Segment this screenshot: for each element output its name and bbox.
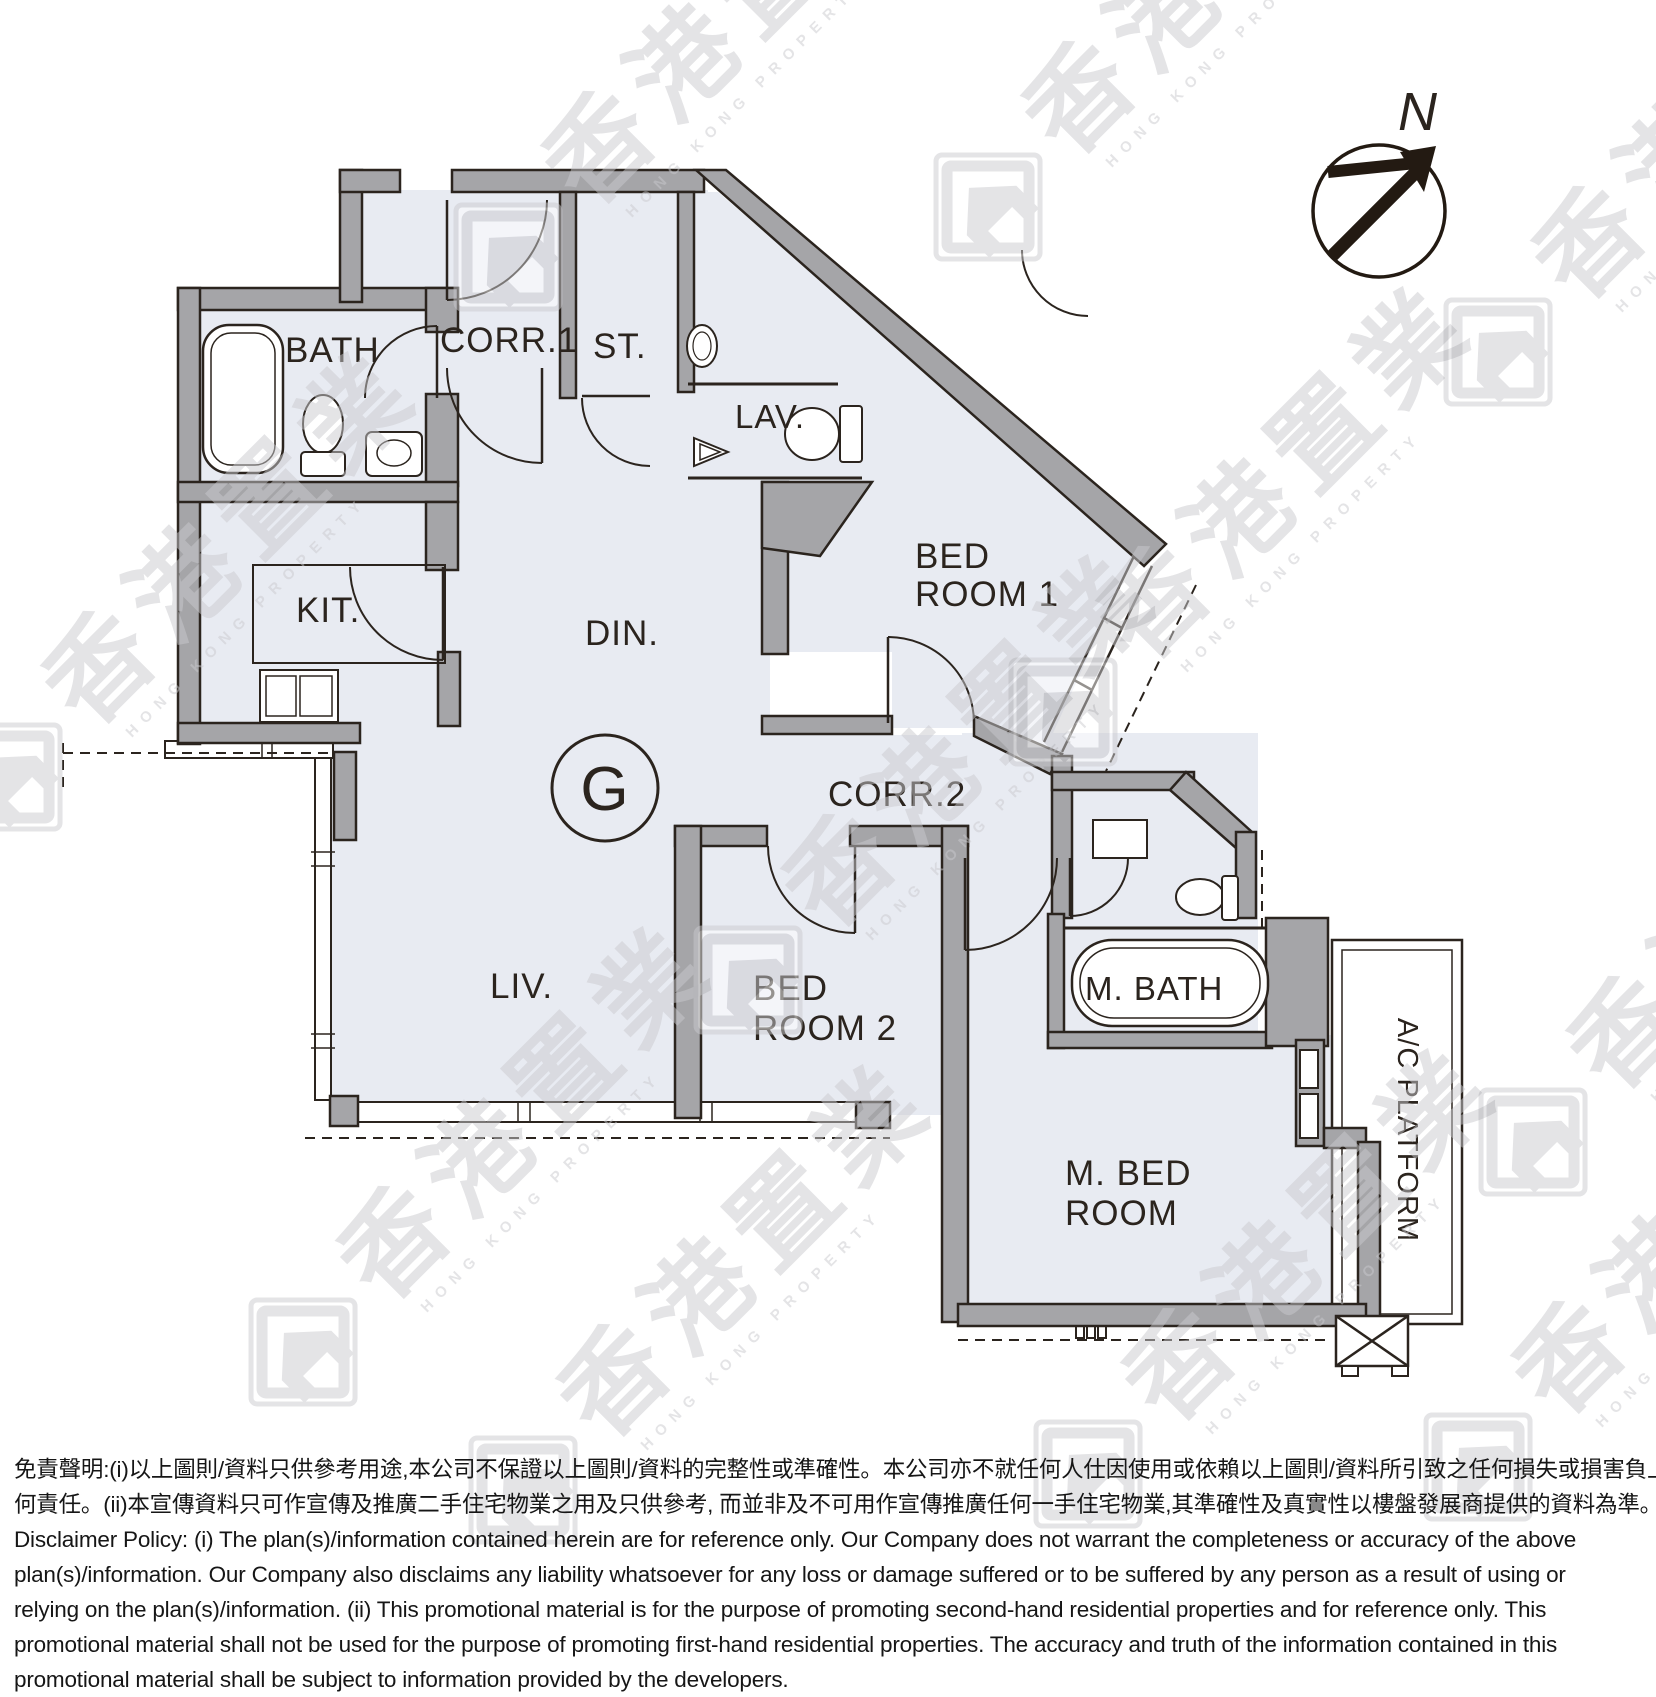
label-mbed-line1: M. BED <box>1065 1154 1192 1193</box>
disclaimer: 免責聲明:(i)以上圖則/資料只供參考用途,本公司不保證以上圖則/資料的完整性或… <box>14 1452 1646 1697</box>
compass: N <box>1313 82 1445 277</box>
disclaimer-line: Disclaimer Policy: (i) The plan(s)/infor… <box>14 1522 1646 1557</box>
ac-corner-box <box>1336 1316 1408 1376</box>
label-ac-platform: A/C PLATFORM <box>1391 1018 1423 1242</box>
disclaimer-line: 何責任。(ii)本宣傳資料只可作宣傳及推廣二手住宅物業之用及只供參考, 而並非及… <box>14 1487 1646 1522</box>
unit-badge: G <box>552 735 658 841</box>
mbed-bottom-ticks <box>1076 1326 1106 1338</box>
disclaimer-line: 免責聲明:(i)以上圖則/資料只供參考用途,本公司不保證以上圖則/資料的完整性或… <box>14 1452 1646 1487</box>
label-din: DIN. <box>585 614 659 653</box>
label-mbath: M. BATH <box>1085 970 1223 1007</box>
label-bedroom2-line1: BED <box>753 969 828 1008</box>
label-st: ST. <box>593 327 647 366</box>
label-bath: BATH <box>285 331 380 370</box>
label-kit: KIT. <box>296 591 360 630</box>
disclaimer-line: plan(s)/information. Our Company also di… <box>14 1557 1646 1592</box>
label-lav: LAV. <box>735 398 805 435</box>
label-bedroom1-line2: ROOM 1 <box>915 575 1059 614</box>
basin-lav <box>687 325 717 367</box>
disclaimer-line: relying on the plan(s)/information. (ii)… <box>14 1592 1646 1627</box>
unit-label: G <box>580 755 629 824</box>
disclaimer-line: promotional material shall not be used f… <box>14 1627 1646 1662</box>
mbed-right-windows <box>1300 1050 1318 1138</box>
label-bedroom2-line2: ROOM 2 <box>753 1009 897 1048</box>
bathtub <box>203 325 283 473</box>
kitchen-stove <box>260 670 338 722</box>
compass-north-label: N <box>1398 82 1438 142</box>
label-liv: LIV. <box>490 967 553 1006</box>
sink-bath <box>366 432 422 476</box>
label-bedroom1-line1: BED <box>915 537 990 576</box>
cabinet-small-bath <box>1093 820 1147 858</box>
label-corr1: CORR.1 <box>440 321 578 360</box>
label-corr2: CORR.2 <box>828 775 966 814</box>
toilet-bath <box>301 395 345 476</box>
floorplan-page: { "unit_label": "G", "compass": { "north… <box>0 0 1656 1680</box>
label-mbed-line2: ROOM <box>1065 1194 1178 1233</box>
floor-plan: G N BATH CORR.1 ST. LAV. KIT. DIN. BED R… <box>0 0 1656 1680</box>
